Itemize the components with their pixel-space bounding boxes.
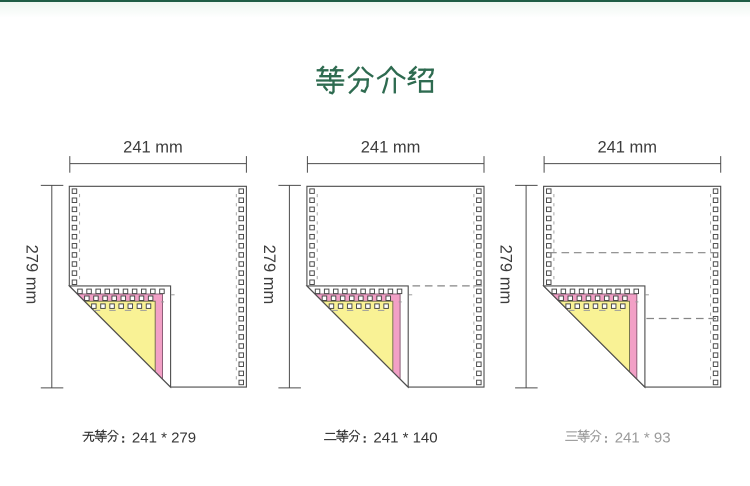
svg-text:241 * 279: 241 * 279 — [132, 430, 196, 447]
svg-text:241 mm: 241 mm — [123, 139, 183, 157]
svg-text:241 mm: 241 mm — [597, 139, 657, 157]
svg-text:241 * 140: 241 * 140 — [373, 430, 437, 447]
svg-text:241 * 93: 241 * 93 — [615, 430, 671, 447]
svg-text:279 mm: 279 mm — [260, 245, 278, 305]
svg-text:279 mm: 279 mm — [22, 245, 40, 305]
svg-text:279 mm: 279 mm — [497, 245, 515, 305]
svg-text:241 mm: 241 mm — [361, 139, 421, 157]
